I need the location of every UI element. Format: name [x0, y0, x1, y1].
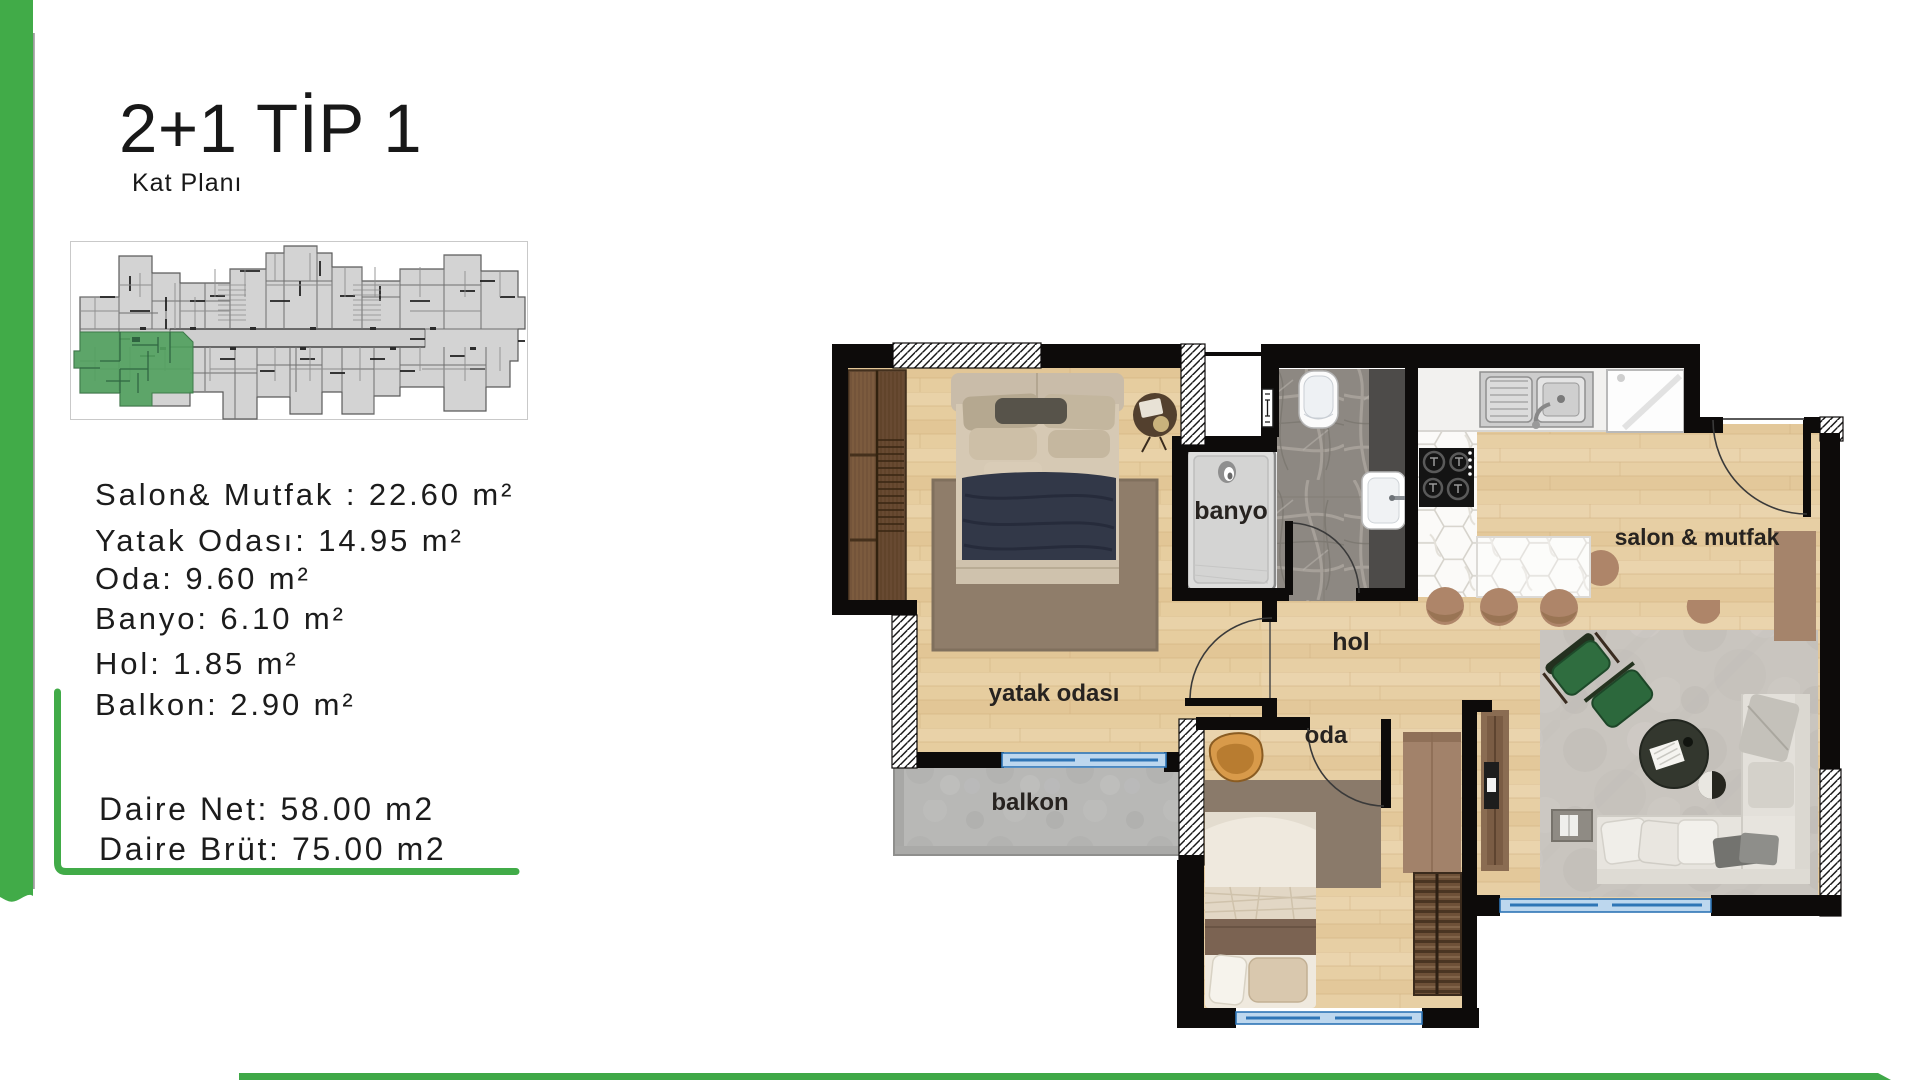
svg-text:oda: oda: [1305, 722, 1348, 749]
svg-text:hol: hol: [1332, 628, 1370, 656]
svg-text:yatak odası: yatak odası: [989, 680, 1120, 707]
svg-text:balkon: balkon: [991, 789, 1068, 816]
svg-text:salon & mutfak: salon & mutfak: [1615, 524, 1780, 550]
svg-text:banyo: banyo: [1194, 497, 1268, 525]
